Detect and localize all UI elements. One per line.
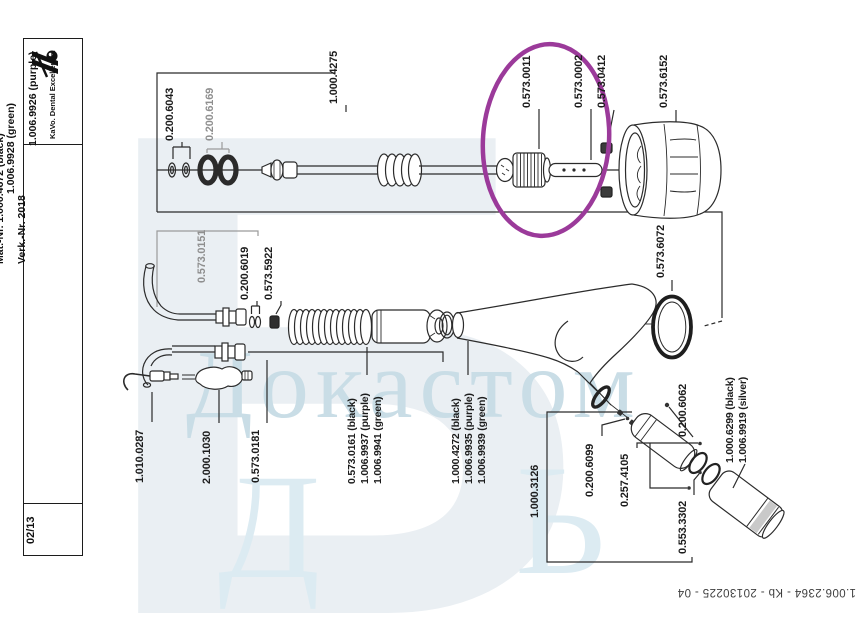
part-label-1010-0287: 1.010.0287 xyxy=(134,430,146,483)
part-label-0553-3302: 0.553.3302 xyxy=(677,501,689,554)
part-label-0573-0161-black: 0.573.0161 (black) xyxy=(347,398,358,484)
part-label-0573-0151: 0.573.0151 xyxy=(196,230,208,283)
part-label-0573-0002: 0.573.0002 xyxy=(573,55,585,108)
part-label-0573-6152: 0.573.6152 xyxy=(658,55,670,108)
coil-spring-drawing xyxy=(289,310,372,345)
part-label-1006-9939-green: 1.006.9939 (green) xyxy=(477,397,488,484)
exploded-diagram-drawing xyxy=(0,0,858,640)
document-code-footer: 1.006.2364 - Kb - 20130225 - 04 xyxy=(628,585,856,599)
part-label-0573-5922: 0.573.5922 xyxy=(263,247,275,300)
part-label-0200-6169: 0.200.6169 xyxy=(204,88,216,141)
part-label-1006-9941-green: 1.006.9941 (green) xyxy=(373,397,384,484)
part-label-0573-0412: 0.573.0412 xyxy=(596,55,608,108)
revision-code: 02/13 xyxy=(25,516,37,544)
part-label-1000-4272-black: 1.000.4272 (black) xyxy=(451,398,462,484)
part-label-0573-0181: 0.573.0181 xyxy=(250,430,262,483)
part-label-0200-6062: 0.200.6062 xyxy=(677,384,689,437)
part-label-1006-9919-silver: 1.006.9919 (silver) xyxy=(738,377,749,463)
info-line-purple: 1.006.9926 (purple) xyxy=(28,51,39,264)
highlight-ellipse xyxy=(476,40,615,240)
part-label-0200-6019: 0.200.6019 xyxy=(239,247,251,300)
part-label-1006-9937-purple: 1.006.9937 (purple) xyxy=(360,393,371,484)
revision-cell: 02/13 xyxy=(24,504,82,551)
part-label-1000-3126: 1.000.3126 xyxy=(529,465,541,518)
part-label-0200-6043: 0.200.6043 xyxy=(164,88,176,141)
parts-diagram-page: Б Д Ь Докастом xyxy=(0,0,858,640)
part-label-1000-4275: 1.000.4275 xyxy=(328,51,340,104)
part-label-0573-6072: 0.573.6072 xyxy=(655,225,667,278)
part-label-1006-9935-purple: 1.006.9935 (purple) xyxy=(464,393,475,484)
material-info: Mat.-Nr. 1.000.4672 (black) 1.006.9928 (… xyxy=(0,51,39,264)
part-label-1000-6299-black: 1.000.6299 (black) xyxy=(725,377,736,463)
part-label-0573-0011: 0.573.0011 xyxy=(521,56,533,108)
middle-assembly-drawing xyxy=(124,231,691,423)
brand-tagline: KaVo. Dental Excellence. xyxy=(48,50,58,139)
title-block-sidebar: KaVo. Dental Excellence. Mat.-Nr. 1.000.… xyxy=(23,38,83,556)
part-label-2000-1030: 2.000.1030 xyxy=(201,431,213,484)
part-label-0200-6099: 0.200.6099 xyxy=(584,444,596,497)
material-info-cell: Mat.-Nr. 1.000.4672 (black) 1.006.9928 (… xyxy=(24,145,82,504)
part-label-0257-4105: 0.257.4105 xyxy=(619,454,631,507)
